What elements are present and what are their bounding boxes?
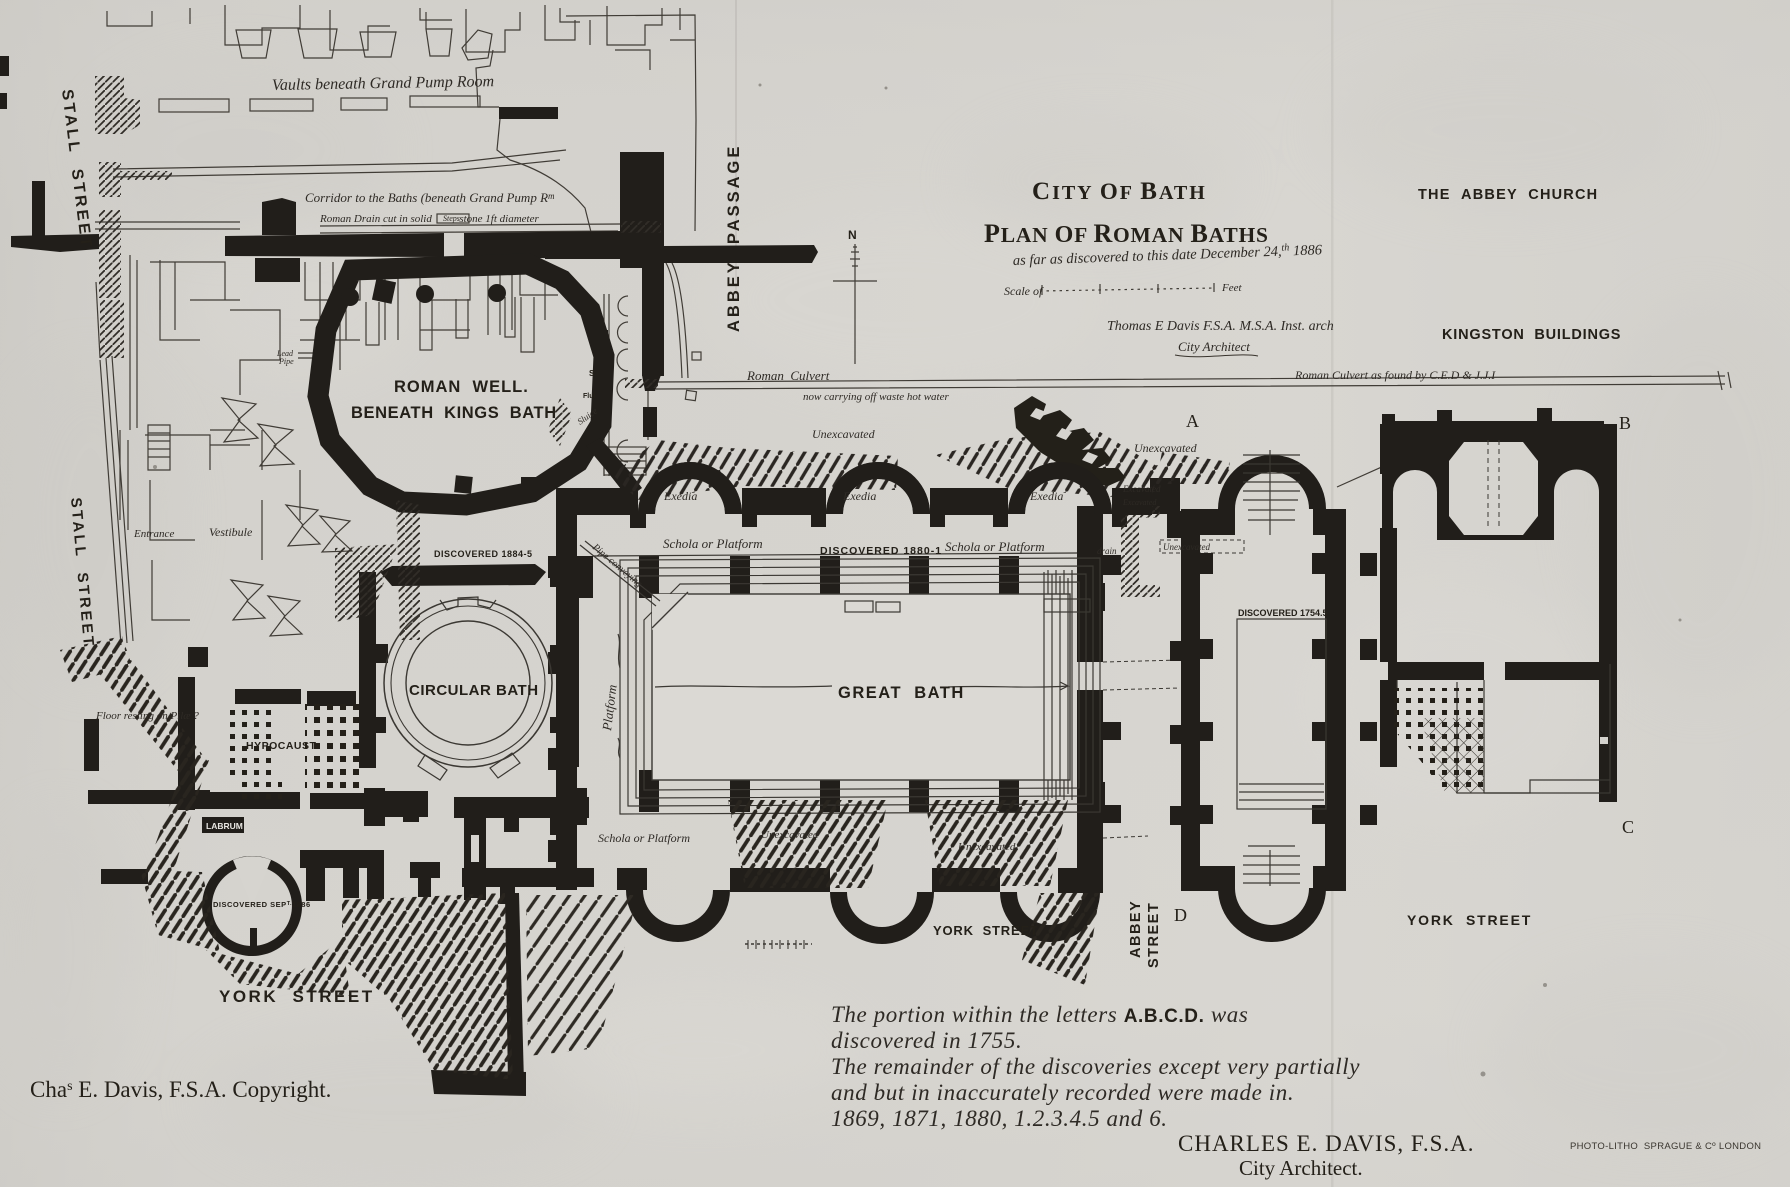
- svg-text:LABRUM: LABRUM: [206, 821, 243, 831]
- svg-text:KINGSTON BUILDINGS: KINGSTON BUILDINGS: [1442, 327, 1621, 343]
- svg-text:City Architect.: City Architect.: [1239, 1156, 1363, 1180]
- svg-text:Vestibule: Vestibule: [209, 525, 253, 539]
- svg-text:B: B: [1619, 413, 1631, 433]
- svg-text:Exedia: Exedia: [663, 489, 697, 503]
- svg-text:YORK STREET: YORK STREET: [1407, 912, 1532, 928]
- svg-text:THE ABBEY CHURCH: THE ABBEY CHURCH: [1418, 187, 1598, 203]
- svg-text:Unexcavated: Unexcavated: [812, 427, 876, 441]
- svg-text:City Architect: City Architect: [1178, 339, 1250, 354]
- svg-text:Schola or Platform: Schola or Platform: [598, 831, 690, 845]
- svg-text:Pipe: Pipe: [278, 357, 294, 366]
- svg-text:Excavated: Excavated: [1122, 498, 1157, 507]
- svg-text:ABBEY: ABBEY: [1128, 900, 1144, 958]
- svg-text:and but in inaccurately record: and but in inaccurately recorded were ma…: [831, 1080, 1294, 1105]
- svg-text:Flui: Flui: [583, 393, 595, 400]
- svg-text:C: C: [1622, 817, 1634, 837]
- svg-text:Schola or Platform: Schola or Platform: [945, 539, 1045, 554]
- svg-text:DISCOVERED 1884-5: DISCOVERED 1884-5: [434, 549, 533, 559]
- svg-text:HYPOCAUST: HYPOCAUST: [246, 740, 317, 752]
- svg-text:Roman Drain cut in solid: Roman Drain cut in solid stone 1ft diame…: [319, 213, 539, 225]
- svg-text:Feet: Feet: [1221, 282, 1242, 294]
- svg-text:CITY OF BATH: CITY OF BATH: [1032, 178, 1207, 205]
- svg-text:Unexcavated: Unexcavated: [1163, 542, 1210, 552]
- svg-text:GREAT BATH: GREAT BATH: [838, 684, 965, 702]
- svg-text:Exedia: Exedia: [1029, 489, 1063, 503]
- svg-text:The portion within the letters: The portion within the letters A.B.C.D. …: [831, 1002, 1248, 1027]
- svg-text:drain: drain: [1097, 546, 1117, 556]
- svg-text:DISCOVERED SEPT.1886: DISCOVERED SEPT.1886: [213, 900, 311, 909]
- svg-text:N: N: [848, 228, 857, 242]
- svg-text:Unexcavated: Unexcavated: [958, 841, 1016, 853]
- svg-text:now carrying off waste hot wat: now carrying off waste hot water: [803, 391, 949, 403]
- svg-text:Unexcavated: Unexcavated: [761, 829, 819, 841]
- svg-text:Unexcavated: Unexcavated: [1134, 441, 1198, 455]
- svg-text:DISCOVERED 1754.5: DISCOVERED 1754.5: [1238, 608, 1328, 618]
- svg-text:Roman Culvert as found by C.E.: Roman Culvert as found by C.E.D & J.J.I: [1294, 368, 1496, 382]
- svg-text:STREET: STREET: [1146, 902, 1162, 968]
- svg-text:1869, 1871, 1880, 1.2.3.4.5 an: 1869, 1871, 1880, 1.2.3.4.5 and 6.: [831, 1106, 1168, 1131]
- svg-text:ABBEY PASSAGE: ABBEY PASSAGE: [725, 144, 743, 332]
- svg-text:PHOTO-LITHO SPRAGUE & Cº LOND: PHOTO-LITHO SPRAGUE & Cº LONDON: [1570, 1141, 1761, 1152]
- svg-text:YORK STREET: YORK STREET: [933, 923, 1039, 938]
- svg-text:S: S: [589, 369, 595, 378]
- svg-text:Thomas E Davis F.S.A. M.S.A. I: Thomas E Davis F.S.A. M.S.A. Inst. arch: [1107, 319, 1334, 334]
- svg-text:The remainder of the discoveri: The remainder of the discoveries except …: [831, 1054, 1360, 1079]
- svg-text:Schola or Platform: Schola or Platform: [663, 536, 763, 551]
- svg-text:A: A: [1186, 411, 1199, 431]
- svg-text:D: D: [1174, 905, 1187, 925]
- svg-text:ROMAN WELL.: ROMAN WELL.: [394, 378, 529, 396]
- svg-text:PLAN OF ROMAN BATHS: PLAN OF ROMAN BATHS: [984, 219, 1269, 248]
- svg-text:Chas E. Davis, F.S.A. Copyrigh: Chas E. Davis, F.S.A. Copyright.: [30, 1077, 331, 1102]
- svg-text:Excavated: Excavated: [1122, 484, 1161, 494]
- svg-text:Entrance: Entrance: [133, 528, 174, 540]
- svg-text:Roman Culvert: Roman Culvert: [746, 368, 830, 383]
- svg-text:Floor resting on Pilæ ?: Floor resting on Pilæ ?: [95, 710, 199, 722]
- svg-text:YORK STREET: YORK STREET: [219, 987, 375, 1006]
- svg-text:Exedia: Exedia: [842, 489, 876, 503]
- svg-text:Corridor to the Baths (beneath: Corridor to the Baths (beneath Grand Pum…: [305, 190, 555, 205]
- svg-text:BENEATH KINGS BATH: BENEATH KINGS BATH: [351, 404, 557, 422]
- svg-text:DISCOVERED 1880-1: DISCOVERED 1880-1: [820, 545, 942, 557]
- svg-text:Steps: Steps: [443, 214, 460, 223]
- svg-text:CHARLES E. DAVIS, F.S.A.: CHARLES E. DAVIS, F.S.A.: [1178, 1131, 1475, 1156]
- svg-text:Scale of: Scale of: [1004, 284, 1044, 298]
- svg-text:CIRCULAR BATH: CIRCULAR BATH: [409, 682, 539, 699]
- svg-text:discovered in 1755.: discovered in 1755.: [831, 1028, 1022, 1053]
